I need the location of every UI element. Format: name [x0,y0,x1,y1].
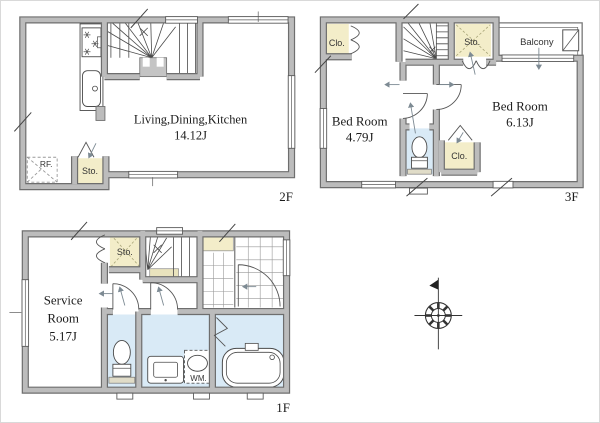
compass-icon [414,278,462,350]
storage-label-3f: Sto. [464,37,480,47]
floor-2f: Living,Dining,Kitchen 14.12J Sto. RF. 2F [14,9,294,204]
floor-label-2f: 2F [279,189,293,204]
closet-bottom-label-3f: Clo. [451,151,467,161]
refrigerator-label: RF. [40,159,53,169]
stove-icon [82,28,101,57]
floor-label-1f: 1F [276,400,290,415]
walls-2f [23,20,292,187]
stair-landing-notch [143,58,150,67]
floor-label-3f: 3F [565,189,579,204]
storage-label-2f: Sto. [82,166,98,176]
stair-landing-notch [157,58,164,67]
stairs-3f [404,20,451,59]
area-label-ldk: 14.12J [174,128,207,142]
balcony-label: Balcony [520,37,554,48]
closet-top-label-3f: Clo. [329,38,345,48]
windows-2f [129,11,295,186]
north-flag [429,280,438,290]
bathtub-icon [222,343,284,387]
area-label-service: 5.17J [49,328,77,343]
room-label-ldk: Living,Dining,Kitchen [134,112,248,126]
room-label-service-1: Service [44,293,83,308]
floor-plan-svg: Living,Dining,Kitchen 14.12J Sto. RF. 2F [1,1,599,422]
sink-icon [83,71,101,107]
storage-label-1f: Sto. [117,247,133,257]
floor-3f: Bed Room 4.79J Bed Room 6.13J Clo. Sto. … [315,4,582,204]
storage-door-2f [78,142,96,157]
washer-label: WM. [190,374,206,383]
area-label-bedroom-small: 4.79J [346,129,374,144]
arrows-1f [100,287,256,306]
walls-2f-fill [23,20,292,187]
area-label-bedroom-large: 6.13J [506,114,534,129]
room-label-service-2: Room [47,310,79,325]
washbasin-icon [148,356,184,383]
counter-end-wall [96,106,105,120]
room-label-bedroom-small: Bed Room [332,113,388,128]
room-label-bedroom-large: Bed Room [492,98,548,113]
floor-plan-image: Living,Dining,Kitchen 14.12J Sto. RF. 2F [0,0,600,423]
floor-1f: Service Room 5.17J Sto. WM. 1F [9,222,290,415]
